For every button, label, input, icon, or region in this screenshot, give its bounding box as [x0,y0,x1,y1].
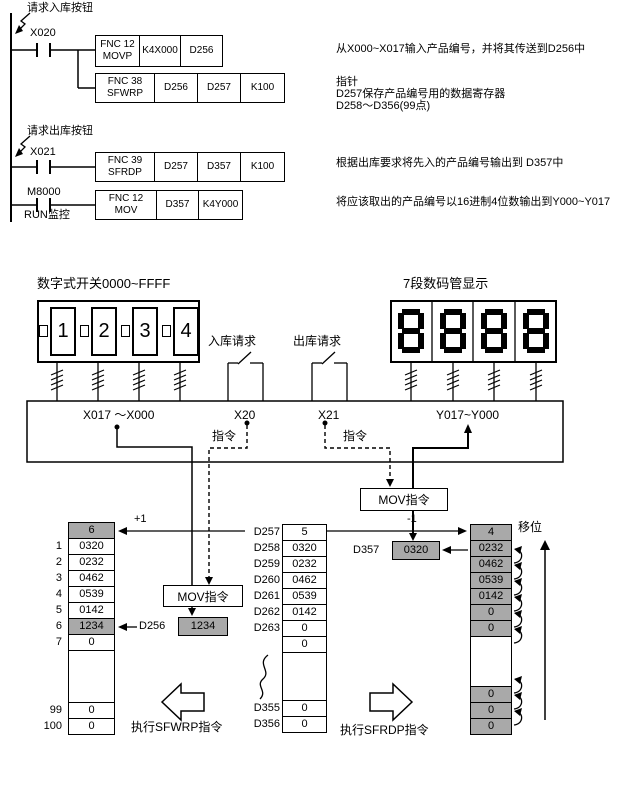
data-cell-highlighted: 1234 [68,618,115,635]
annotation-4: D258～D356(99点) [336,100,430,113]
minus-one-label: -1 [407,513,417,526]
request-switch-symbols [228,352,347,401]
row-label: D259 [242,557,280,572]
thumbwheel-tab [162,325,171,337]
request-in-label: 入库请求 [208,334,256,348]
operand-cell: D257 [154,152,198,182]
empty-cell [470,636,512,687]
data-cell-highlighted: 0462 [470,556,512,573]
instruction-box-mov: FNC 12MOV D357 K4Y000 [95,190,243,220]
annotation-1: 从X000~X017输入产品编号，并将其传送到D256中 [336,43,585,56]
data-cell: 0 [68,702,115,719]
fnc-cell-highlighted: FNC 39SFRDP [95,152,155,182]
row-label: D355 [242,701,280,716]
data-cell: 0 [68,634,115,651]
data-cell: 0539 [68,586,115,603]
contact-label-x021: X021 [30,146,56,159]
d256-register-label: D256 [139,620,165,633]
seven-segment-title: 7段数码管显示 [403,276,488,291]
row-label: 6 [36,619,62,634]
row-label: D262 [242,605,280,620]
request-out-label: 出库请求 [293,334,341,348]
thumbwheel-digit-2: 2 [91,307,117,356]
operand-cell: D357 [197,152,241,182]
pointer-cell: 4 [470,524,512,541]
data-cell: 0142 [282,604,327,621]
thumbwheel-digit-4: 4 [173,307,199,356]
fnc-cell: FNC 12MOVP [95,35,140,67]
row-label: D257 [242,525,280,540]
row-label: D261 [242,589,280,604]
data-cell-highlighted: 0232 [470,540,512,557]
data-cell-highlighted: 0 [470,718,512,735]
run-monitor-label: RUN监控 [24,209,70,222]
comment-request-out: 请求出库按钮 [27,125,93,138]
operand-cell: D256 [154,73,198,103]
bus-y-range-label: Y017~Y000 [436,408,499,422]
operand-cell: K4X000 [139,35,181,67]
mov-instruction-box-write: MOV指令 [163,585,243,607]
bus-x-range-label: X017 ～X000 [83,408,154,422]
row-label: 4 [36,587,62,602]
data-cell: 0142 [68,602,115,619]
big-arrow-left [162,684,204,720]
row-label: D356 [242,717,280,732]
thumbwheel-tab [121,325,130,337]
empty-cell [282,652,327,701]
command-label-2: 指令 [343,429,367,443]
thumbwheel-tab [39,325,48,337]
d357-register-label: D357 [353,544,379,557]
command-label-1: 指令 [212,429,236,443]
row-label: 1 [36,539,62,554]
data-cell: 0539 [282,588,327,605]
digital-switch-title: 数字式开关0000~FFFF [37,276,170,291]
data-cell: 0 [68,718,115,735]
row-label: D260 [242,573,280,588]
operand-cell: D257 [197,73,241,103]
table-ellipsis-squiggle [260,655,268,699]
exec-sfrdp-label: 执行SFRDP指令 [340,723,429,737]
thumbwheel-digit-3: 3 [132,307,158,356]
annotation-6: 将应该取出的产品编号以16进制4位数输出到Y000~Y017 [336,196,610,209]
contact-label-m8000: M8000 [27,186,61,199]
row-label: 100 [36,719,62,734]
row-label: 2 [36,555,62,570]
data-cell-highlighted: 0 [470,686,512,703]
data-cell-highlighted: 0 [470,620,512,637]
pointer-value-cell: 5 [282,524,327,541]
data-cell: 0462 [282,572,327,589]
data-cell: 0 [282,700,327,717]
d256-value-cell: 1234 [178,617,228,636]
operand-cell: K100 [240,73,285,103]
comment-request-in: 请求入库按钮 [27,2,93,15]
row-label: D258 [242,541,280,556]
instruction-box-sfwrp: FNC 38SFWRP D256 D257 K100 [95,73,285,103]
data-cell: 0320 [282,540,327,557]
data-cell-highlighted: 0 [470,604,512,621]
data-cell-highlighted: 0 [470,702,512,719]
row-label: 7 [36,635,62,650]
plc-fifo-diagram-page: 请求入库按钮 X020 请求出库按钮 X021 M8000 RUN监控 FNC … [0,0,644,791]
plus-one-label: +1 [134,513,147,526]
switch-wiring [51,363,186,401]
bus-x20-label: X20 [234,408,255,422]
instruction-box-movp: FNC 12MOVP K4X000 D256 [95,35,223,67]
data-cell-highlighted: 0142 [470,588,512,605]
operand-cell: D256 [180,35,223,67]
thumbwheel-digit-1: 1 [50,307,76,356]
instruction-box-sfrdp: FNC 39SFRDP D257 D357 K100 [95,152,285,182]
seven-segment-display [390,300,557,363]
fnc-cell: FNC 12MOV [95,190,157,220]
row-label: D263 [242,621,280,636]
annotation-5: 根据出库要求将先入的产品编号输出到 D357中 [336,157,563,170]
shift-arrows [514,540,550,725]
data-cell: 0 [282,716,327,733]
data-cell: 0462 [68,570,115,587]
row-label: 3 [36,571,62,586]
fnc-cell-highlighted: FNC 38SFWRP [95,73,155,103]
empty-cell [68,650,115,703]
thumbwheel-tab [80,325,89,337]
pointer-cell: 6 [68,522,115,539]
exec-sfwrp-label: 执行SFWRP指令 [131,720,222,734]
d357-value-cell: 0320 [392,541,440,560]
data-cell-highlighted: 0539 [470,572,512,589]
data-cell: 0232 [282,556,327,573]
shift-label: 移位 [518,520,542,534]
operand-cell: D357 [156,190,199,220]
mov-instruction-box-read: MOV指令 [360,488,448,511]
operand-cell: K4Y000 [198,190,243,220]
data-cell: 0 [282,636,327,653]
row-label: 99 [36,703,62,718]
operand-cell: K100 [240,152,285,182]
data-cell: 0 [282,620,327,637]
bus-x21-label: X21 [318,408,339,422]
contact-label-x020: X020 [30,27,56,40]
row-label: 5 [36,603,62,618]
data-cell: 0232 [68,554,115,571]
data-cell: 0320 [68,538,115,555]
big-arrow-right [370,684,412,720]
display-wiring [405,363,542,401]
